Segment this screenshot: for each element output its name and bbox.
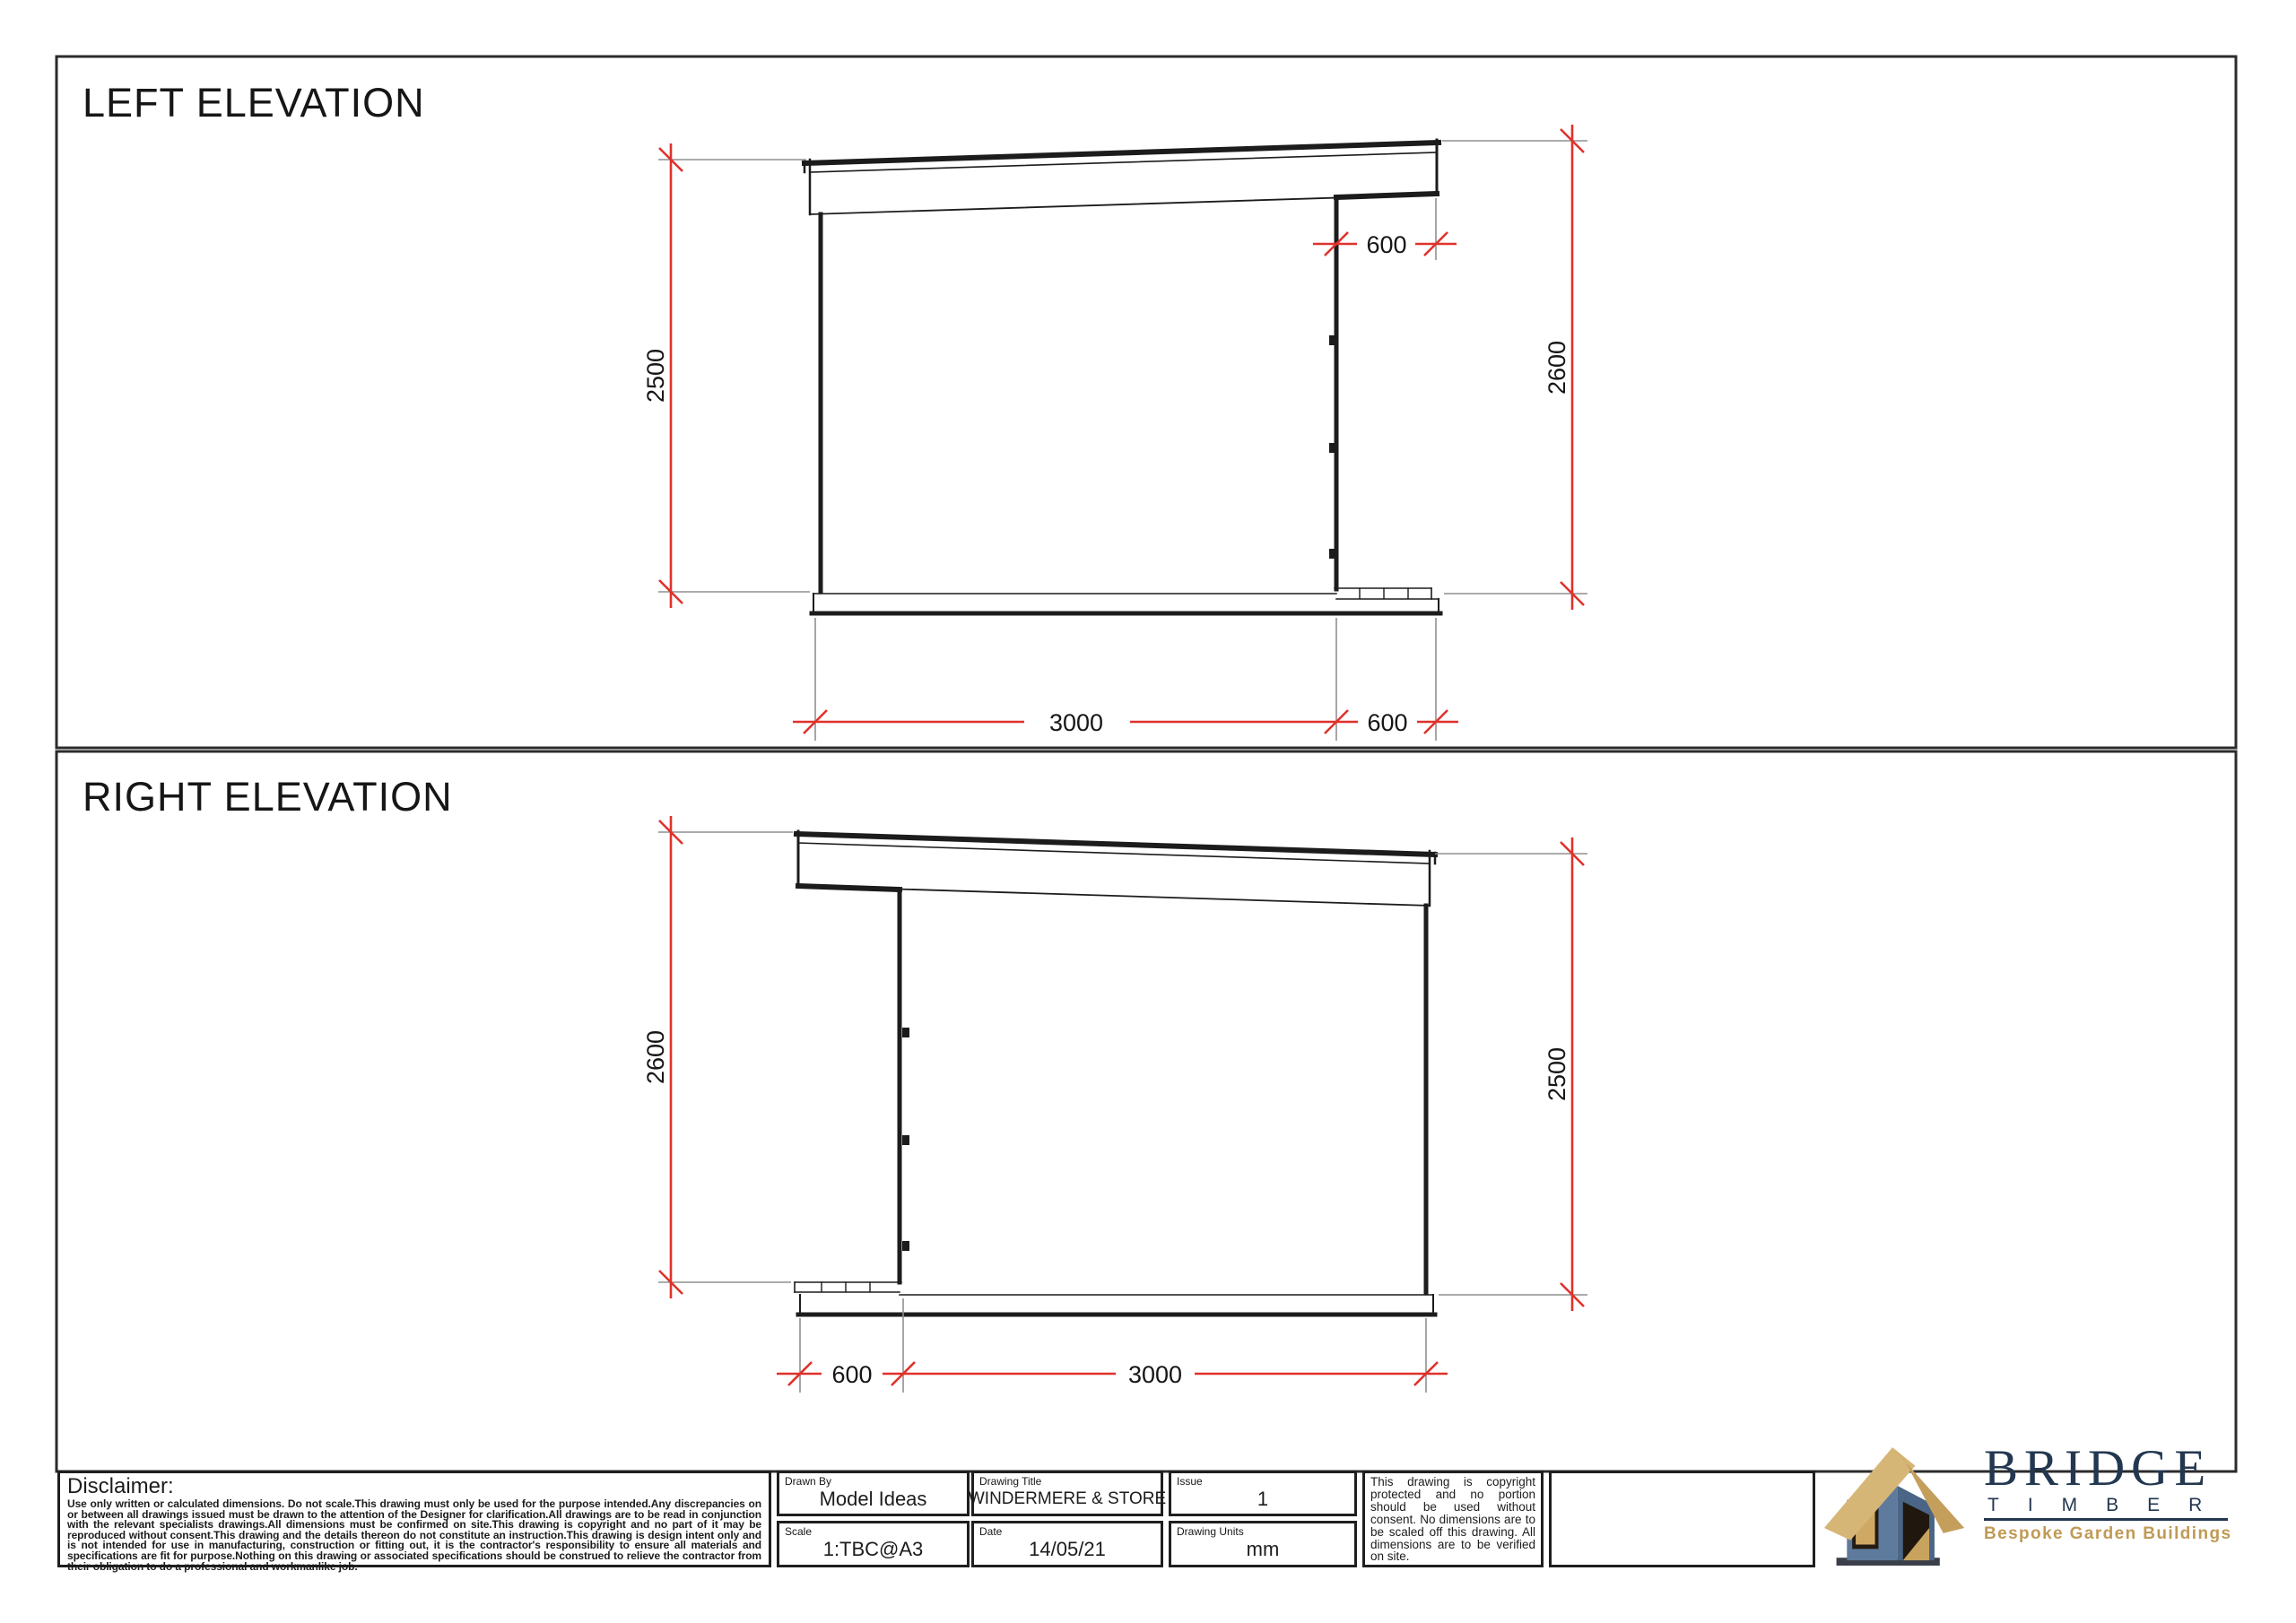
dim-label-overhang-top: 600 xyxy=(1366,231,1406,258)
dim-label-width: 3000 xyxy=(1049,709,1103,736)
field-label: Issue xyxy=(1171,1473,1354,1488)
company-logo: BRIDGE TIMBER Bespoke Garden Buildings xyxy=(1821,1445,2240,1573)
left-elevation-title: LEFT ELEVATION xyxy=(83,80,425,126)
field-label: Drawn By xyxy=(779,1473,967,1488)
field-scale: Scale 1:TBC@A3 xyxy=(777,1521,970,1567)
field-value: Model Ideas xyxy=(779,1488,967,1515)
house-icon xyxy=(1821,1445,1970,1573)
brand-subname: TIMBER xyxy=(1984,1496,2240,1515)
dim-label-overhang-bottom: 600 xyxy=(831,1361,872,1388)
field-label: Scale xyxy=(779,1523,967,1538)
copyright-box: This drawing is copyright protected and … xyxy=(1362,1471,1544,1567)
disclaimer-heading: Disclaimer: xyxy=(67,1475,761,1498)
field-label: Drawing Title xyxy=(974,1473,1161,1488)
revision-box-empty xyxy=(1549,1471,1815,1567)
brand-tagline: Bespoke Garden Buildings xyxy=(1984,1524,2240,1544)
field-label: Drawing Units xyxy=(1171,1523,1354,1538)
dim-label-right-height: 2600 xyxy=(1544,341,1570,395)
field-issue: Issue 1 xyxy=(1169,1471,1357,1516)
field-drawing-units: Drawing Units mm xyxy=(1169,1521,1357,1567)
drawing-canvas: LEFT ELEVATION RIGHT ELEVATION xyxy=(0,0,2296,1623)
field-drawing-title: Drawing Title WINDERMERE & STORE xyxy=(971,1471,1163,1516)
logo-divider xyxy=(1984,1518,2228,1521)
dim-label-left-height: 2500 xyxy=(642,349,669,403)
dim-label-right-height: 2500 xyxy=(1544,1047,1570,1101)
field-value: 1 xyxy=(1171,1488,1354,1515)
disclaimer-box: Disclaimer: Use only written or calculat… xyxy=(57,1471,771,1567)
field-value: WINDERMERE & STORE xyxy=(974,1488,1161,1514)
left-elevation-panel xyxy=(57,56,2236,748)
copyright-text: This drawing is copyright protected and … xyxy=(1370,1476,1535,1563)
field-value: 1:TBC@A3 xyxy=(779,1538,967,1565)
brand-name: BRIDGE xyxy=(1984,1445,2240,1492)
field-label: Date xyxy=(974,1523,1161,1538)
field-drawn-by: Drawn By Model Ideas xyxy=(777,1471,970,1516)
dim-label-width: 3000 xyxy=(1128,1361,1182,1388)
dim-label-left-height: 2600 xyxy=(642,1030,669,1084)
field-value: 14/05/21 xyxy=(974,1538,1161,1565)
field-date: Date 14/05/21 xyxy=(971,1521,1163,1567)
field-value: mm xyxy=(1171,1538,1354,1565)
dim-label-overhang-bottom: 600 xyxy=(1367,709,1407,736)
right-elevation-title: RIGHT ELEVATION xyxy=(83,774,453,820)
disclaimer-text: Use only written or calculated dimension… xyxy=(67,1499,761,1572)
